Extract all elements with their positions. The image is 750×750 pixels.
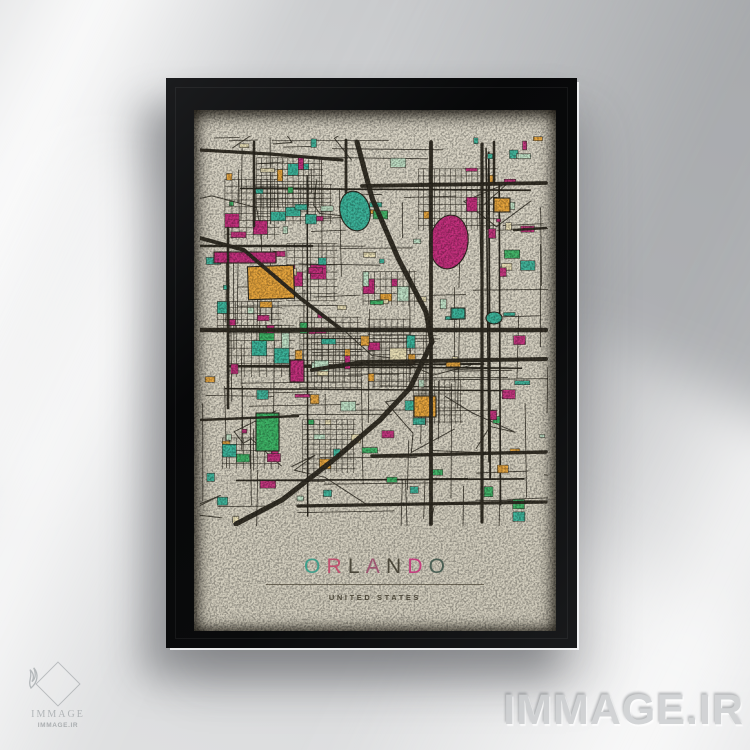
poster-title-block: ORLANDO UNITED STATES [194,556,556,602]
title-letter: N [383,555,404,578]
title-letter: R [324,555,345,578]
title-letter: O [426,555,449,578]
brand-logo: IMMAGE IMMAGE.IR [16,668,100,729]
picture-frame: ORLANDO UNITED STATES [166,78,577,648]
city-map [194,110,556,631]
poster-subtitle: UNITED STATES [194,593,556,602]
title-letter: O [301,555,324,578]
poster-paper: ORLANDO UNITED STATES [194,110,556,631]
title-letter: A [363,555,383,578]
watermark-text: IMMAGE.IR [503,686,744,735]
logo-domain: IMMAGE.IR [16,722,100,729]
title-letter: D [405,555,426,578]
product-photo: ORLANDO UNITED STATES IMMAGE IMMAGE.IR I… [0,0,750,750]
paper-grain [194,110,556,631]
logo-diamond-icon [35,661,80,706]
logo-wordmark: IMMAGE [16,709,100,720]
poster-title: ORLANDO [194,556,556,577]
title-letter: L [345,555,363,578]
flame-icon [20,662,42,692]
title-divider [266,584,484,585]
